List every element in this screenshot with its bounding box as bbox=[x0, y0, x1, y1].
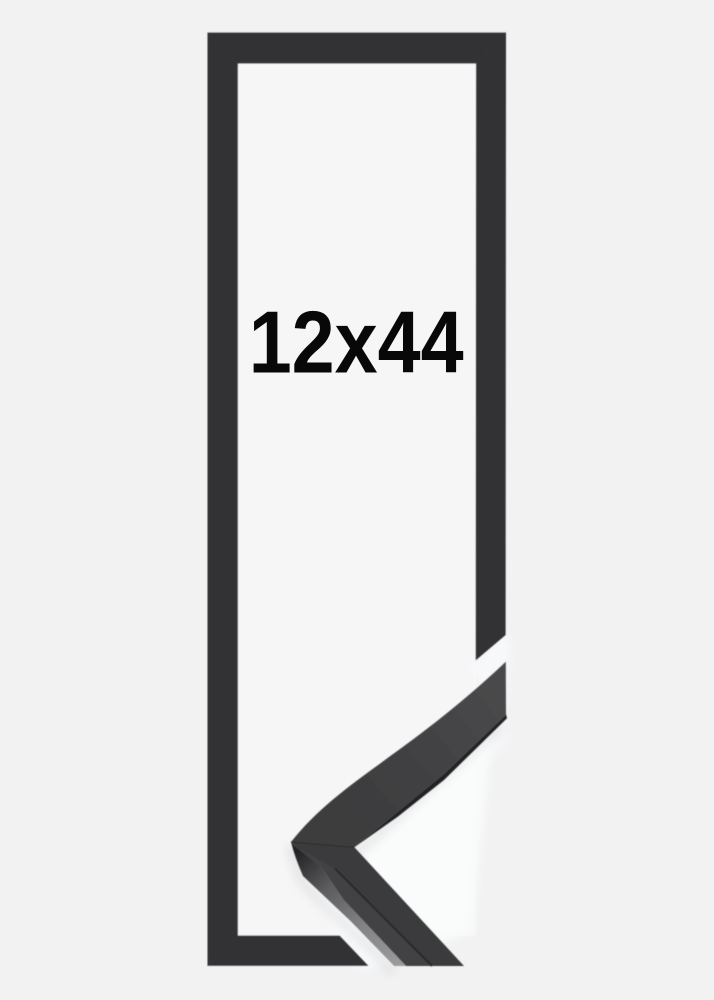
svg-text:12x44: 12x44 bbox=[249, 293, 464, 392]
